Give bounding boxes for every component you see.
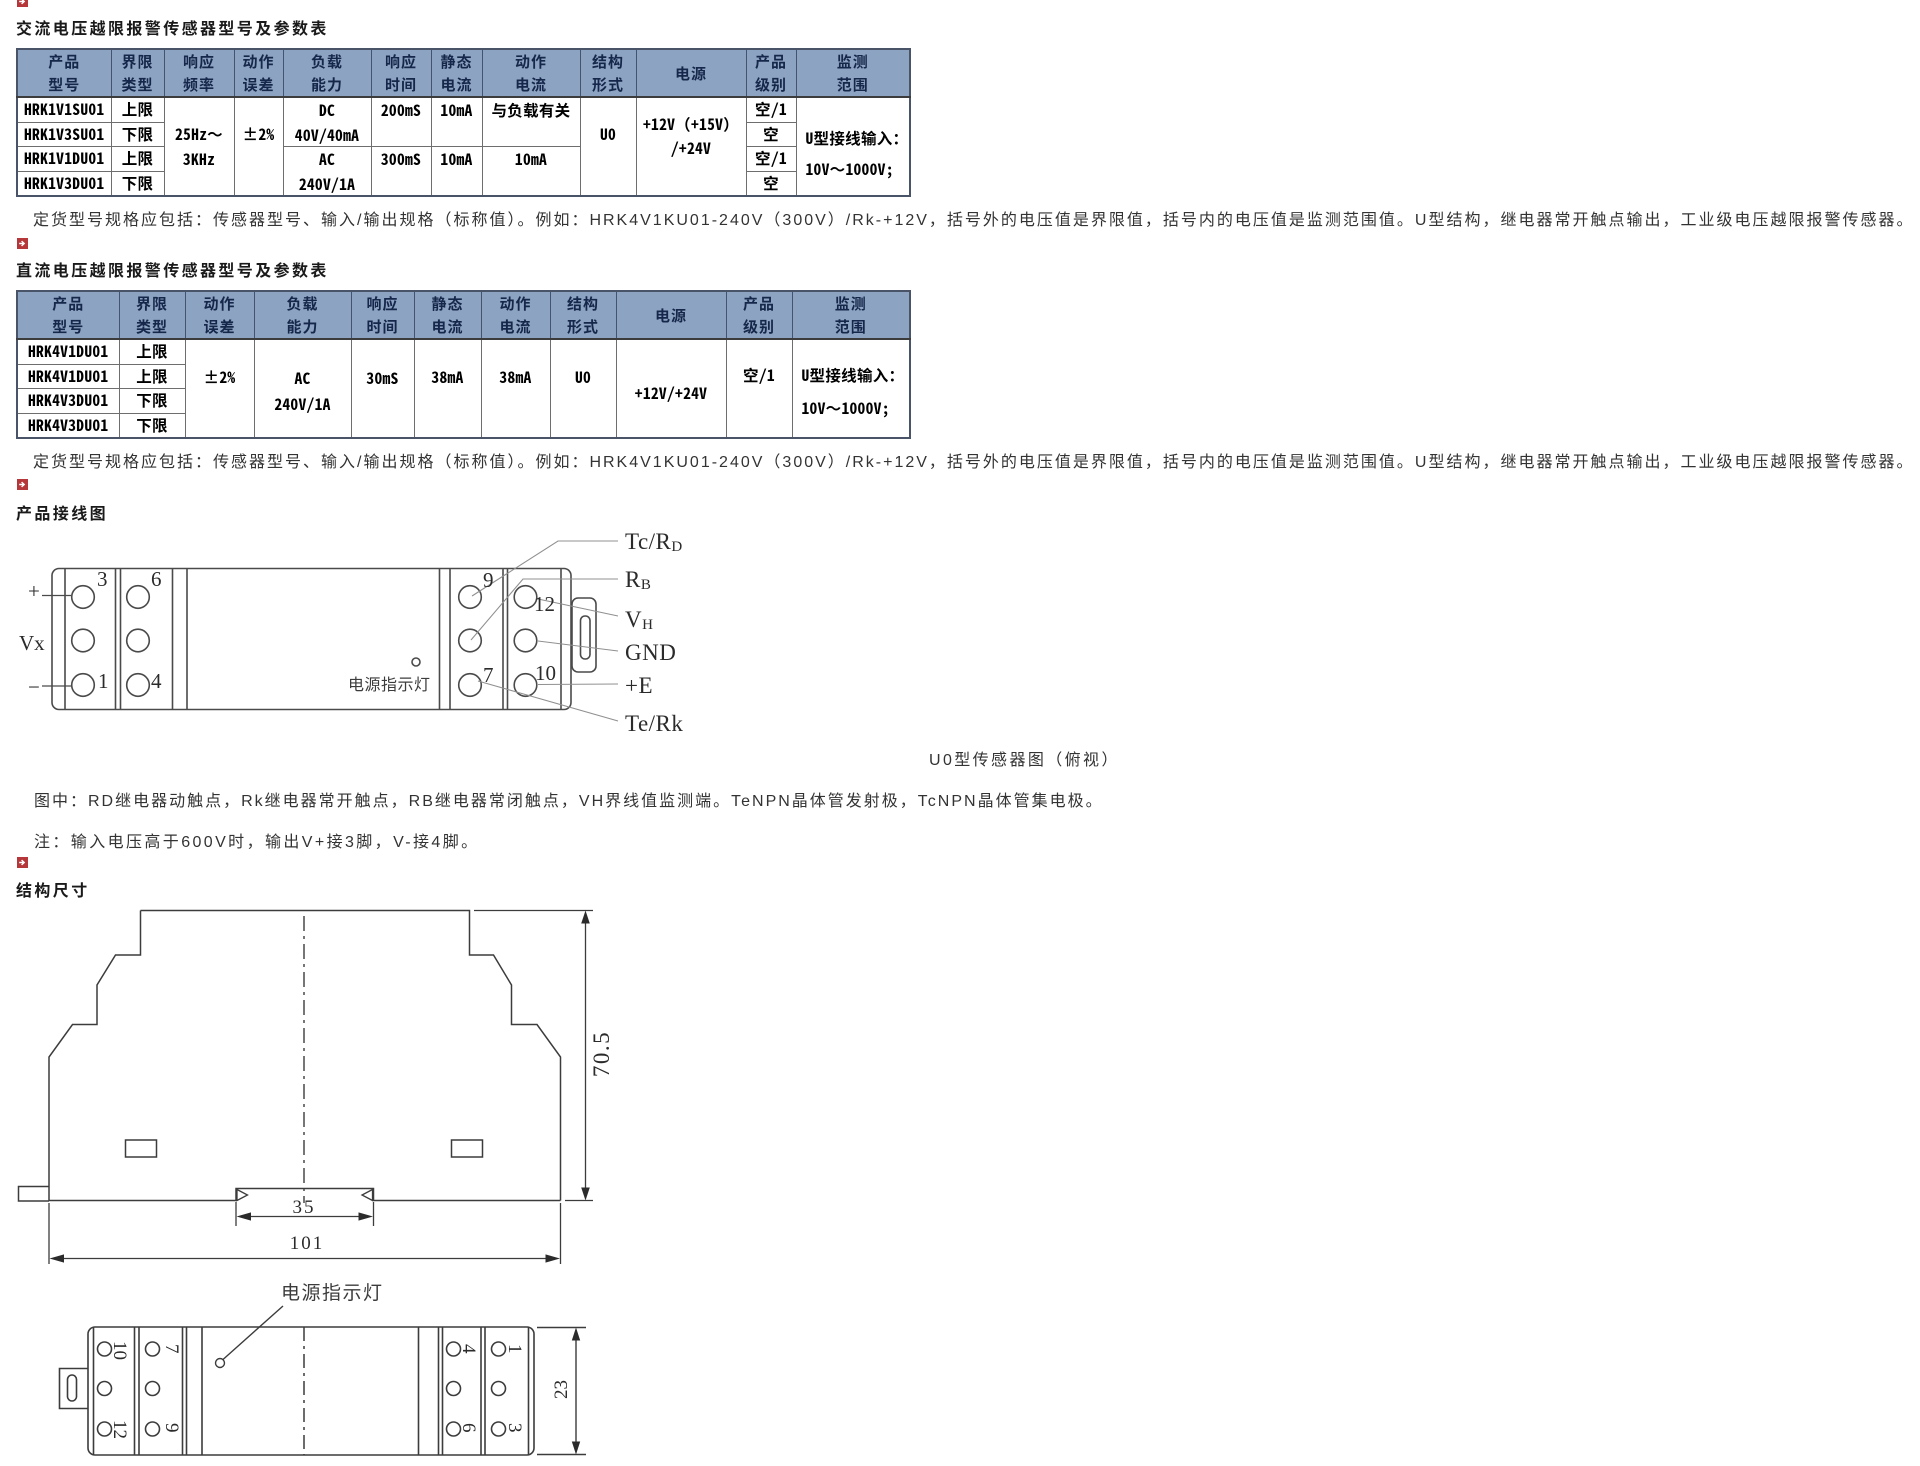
svg-text:1: 1 <box>504 1344 525 1354</box>
svg-text:−: − <box>28 675 40 699</box>
svg-text:+E: +E <box>625 673 653 698</box>
svg-text:RB: RB <box>625 567 651 593</box>
svg-text:70.5: 70.5 <box>589 1031 614 1077</box>
svg-text:Te/Rk: Te/Rk <box>625 711 683 736</box>
svg-text:9: 9 <box>483 568 494 592</box>
svg-text:4: 4 <box>151 669 162 693</box>
svg-text:12: 12 <box>109 1420 130 1439</box>
svg-text:+: + <box>28 579 40 603</box>
svg-text:10: 10 <box>109 1341 130 1360</box>
svg-text:10: 10 <box>535 661 556 685</box>
svg-text:GND: GND <box>625 640 676 665</box>
svg-text:电源指示灯: 电源指示灯 <box>281 1282 384 1304</box>
svg-text:Vx: Vx <box>19 631 45 655</box>
svg-text:3: 3 <box>97 567 108 591</box>
svg-text:7: 7 <box>483 663 494 687</box>
svg-text:4: 4 <box>458 1344 479 1354</box>
svg-text:3: 3 <box>504 1423 525 1433</box>
svg-text:6: 6 <box>458 1423 479 1433</box>
svg-text:9: 9 <box>161 1423 182 1433</box>
svg-text:6: 6 <box>151 567 162 591</box>
svg-text:12: 12 <box>534 592 555 616</box>
svg-text:VH: VH <box>625 607 653 633</box>
svg-text:35: 35 <box>293 1197 316 1218</box>
svg-text:Tc/RD: Tc/RD <box>625 529 683 555</box>
svg-text:101: 101 <box>290 1233 325 1254</box>
svg-text:电源指示灯: 电源指示灯 <box>348 676 431 694</box>
svg-text:1: 1 <box>98 669 109 693</box>
svg-text:7: 7 <box>161 1344 182 1354</box>
svg-text:23: 23 <box>551 1380 572 1399</box>
